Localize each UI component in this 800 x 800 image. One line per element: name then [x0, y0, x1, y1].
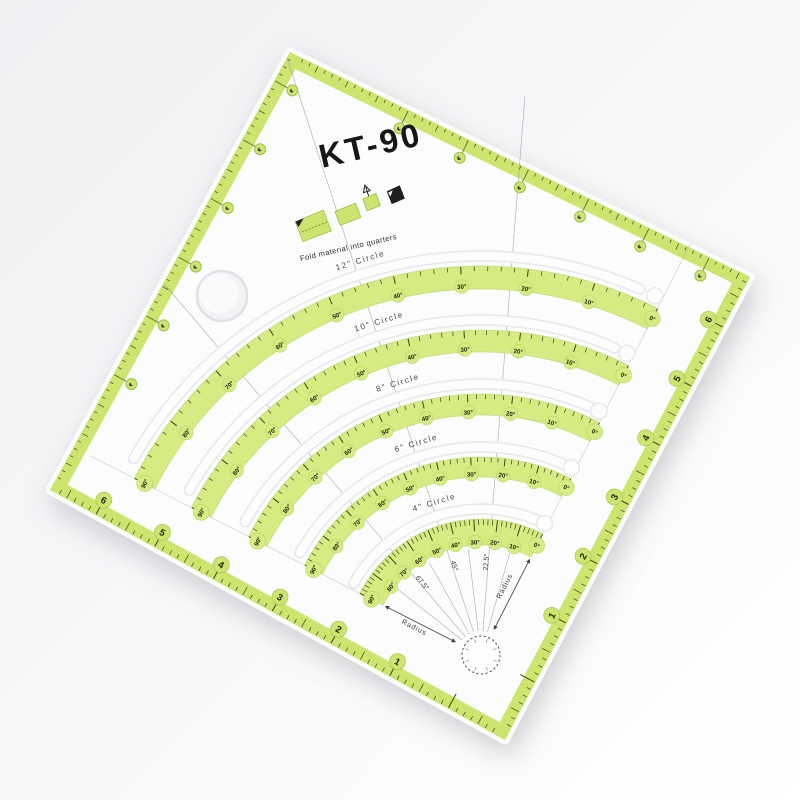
product-photo: 0°10°20°30°40°50°60°70°80°90°12" Circle0… [0, 0, 800, 800]
degree-label: 30° [463, 409, 473, 417]
degree-label: 20° [513, 348, 524, 356]
quilting-ruler-graphic: 0°10°20°30°40°50°60°70°80°90°12" Circle0… [0, 0, 800, 800]
center-pivot-circle [462, 636, 500, 674]
degree-label: 30° [470, 539, 480, 547]
degree-label: 20° [490, 539, 501, 547]
degree-label: 20° [521, 285, 532, 293]
degree-label: 20° [498, 472, 509, 480]
finger-hole [197, 271, 247, 321]
degree-label: 30° [467, 471, 477, 479]
angle-line-label: 22.5° [482, 553, 491, 570]
degree-label: 30° [460, 346, 470, 354]
degree-label: 30° [457, 283, 467, 291]
degree-label: 20° [505, 410, 516, 418]
